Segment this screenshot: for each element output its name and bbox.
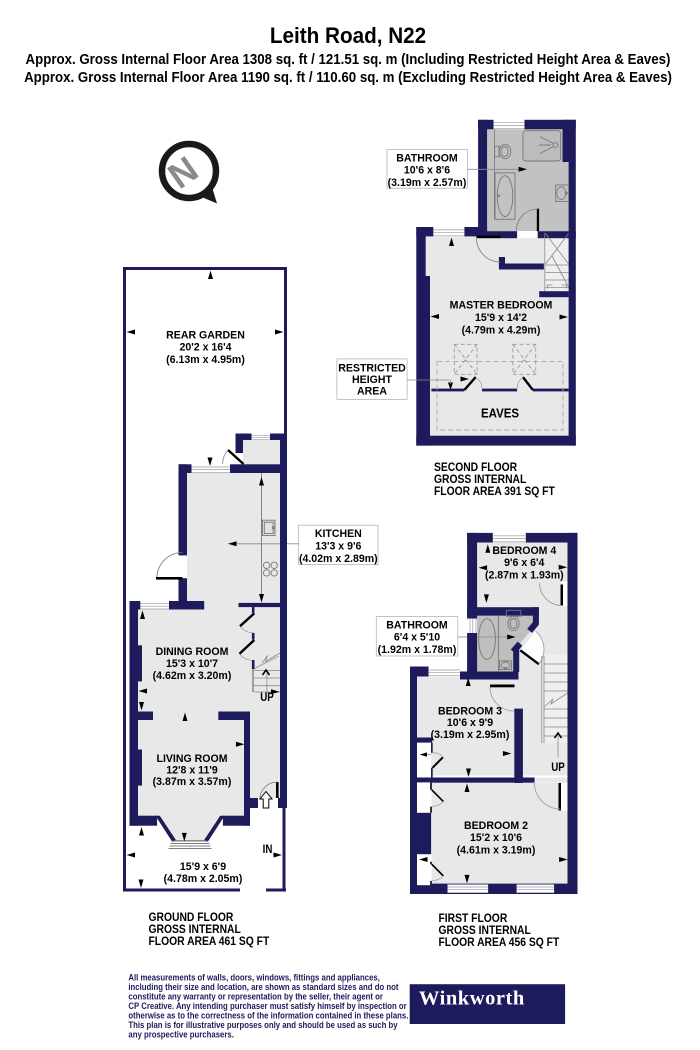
svg-text:15'2 x 10'6: 15'2 x 10'6: [470, 832, 522, 844]
svg-text:15'3 x 10'7: 15'3 x 10'7: [166, 658, 218, 670]
svg-text:(4.79m x 4.29m): (4.79m x 4.29m): [462, 324, 541, 336]
svg-text:10'6 x 9'9: 10'6 x 9'9: [447, 717, 493, 729]
svg-text:BEDROOM 2: BEDROOM 2: [464, 820, 528, 832]
svg-text:(3.19m x 2.57m): (3.19m x 2.57m): [388, 177, 467, 189]
svg-text:(4.61m x 3.19m): (4.61m x 3.19m): [457, 844, 536, 856]
svg-text:(1.92m x 1.78m): (1.92m x 1.78m): [378, 644, 457, 656]
svg-text:any prospective purchasers.: any prospective purchasers.: [128, 1029, 233, 1040]
svg-text:BATHROOM: BATHROOM: [396, 152, 457, 164]
svg-text:GROSS INTERNAL: GROSS INTERNAL: [439, 924, 531, 937]
svg-text:REAR GARDEN: REAR GARDEN: [166, 329, 245, 341]
svg-text:(6.13m x 4.95m): (6.13m x 4.95m): [166, 354, 245, 366]
svg-text:MASTER BEDROOM: MASTER BEDROOM: [450, 299, 553, 311]
svg-text:(4.78m x 2.05m): (4.78m x 2.05m): [164, 873, 243, 885]
svg-text:Approx. Gross Internal Floor A: Approx. Gross Internal Floor Area 1308 s…: [26, 51, 671, 68]
svg-text:GROUND FLOOR: GROUND FLOOR: [149, 911, 234, 924]
svg-text:EAVES: EAVES: [481, 406, 519, 421]
svg-text:FLOOR AREA 456 SQ FT: FLOOR AREA 456 SQ FT: [439, 936, 560, 949]
svg-text:6'4 x 5'10: 6'4 x 5'10: [394, 631, 440, 643]
svg-text:20'2 x 16'4: 20'2 x 16'4: [179, 341, 232, 353]
svg-text:IN: IN: [263, 843, 273, 856]
svg-text:10'6 x 8'6: 10'6 x 8'6: [404, 164, 450, 176]
svg-text:(4.62m x 3.20m): (4.62m x 3.20m): [153, 670, 232, 682]
svg-text:15'9 x 6'9: 15'9 x 6'9: [180, 861, 226, 873]
svg-text:(3.19m x 2.95m): (3.19m x 2.95m): [431, 729, 510, 741]
svg-text:FLOOR AREA 461 SQ FT: FLOOR AREA 461 SQ FT: [149, 935, 270, 948]
svg-text:DINING ROOM: DINING ROOM: [156, 646, 229, 658]
svg-text:15'9 x 14'2: 15'9 x 14'2: [475, 312, 527, 324]
svg-text:SECOND FLOOR: SECOND FLOOR: [434, 461, 517, 474]
svg-text:(4.02m x 2.89m): (4.02m x 2.89m): [299, 553, 378, 565]
svg-text:BEDROOM 4: BEDROOM 4: [492, 545, 557, 557]
svg-text:(3.87m x 3.57m): (3.87m x 3.57m): [153, 776, 232, 788]
svg-text:KITCHEN: KITCHEN: [315, 528, 362, 540]
svg-text:GROSS INTERNAL: GROSS INTERNAL: [149, 923, 241, 936]
svg-text:GROSS INTERNAL: GROSS INTERNAL: [434, 473, 526, 486]
svg-text:BATHROOM: BATHROOM: [386, 619, 447, 631]
svg-text:UP: UP: [551, 761, 565, 774]
svg-text:(2.87m x 1.93m): (2.87m x 1.93m): [485, 569, 564, 581]
svg-text:Winkworth: Winkworth: [419, 988, 525, 1010]
svg-text:FIRST FLOOR: FIRST FLOOR: [439, 912, 508, 925]
svg-text:FLOOR AREA 391 SQ FT: FLOOR AREA 391 SQ FT: [434, 485, 555, 498]
svg-text:9'6 x 6'4: 9'6 x 6'4: [504, 557, 545, 569]
svg-text:Approx. Gross Internal Floor A: Approx. Gross Internal Floor Area 1190 s…: [24, 69, 672, 86]
svg-text:AREA: AREA: [357, 385, 387, 397]
svg-text:Leith Road, N22: Leith Road, N22: [270, 23, 426, 48]
svg-text:13'3 x 9'6: 13'3 x 9'6: [315, 540, 361, 552]
